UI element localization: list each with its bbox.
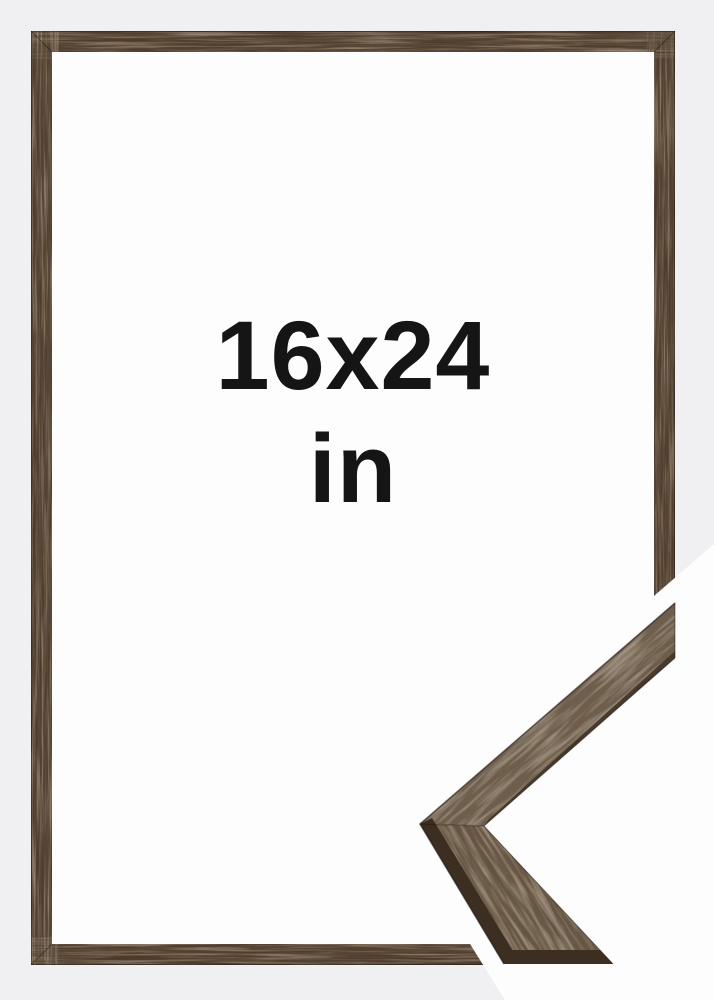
unit-label: in [52, 412, 654, 525]
size-label: 16x24 [52, 299, 654, 412]
product-image: 16x24 in [0, 0, 714, 1000]
size-caption: 16x24 in [52, 299, 654, 526]
